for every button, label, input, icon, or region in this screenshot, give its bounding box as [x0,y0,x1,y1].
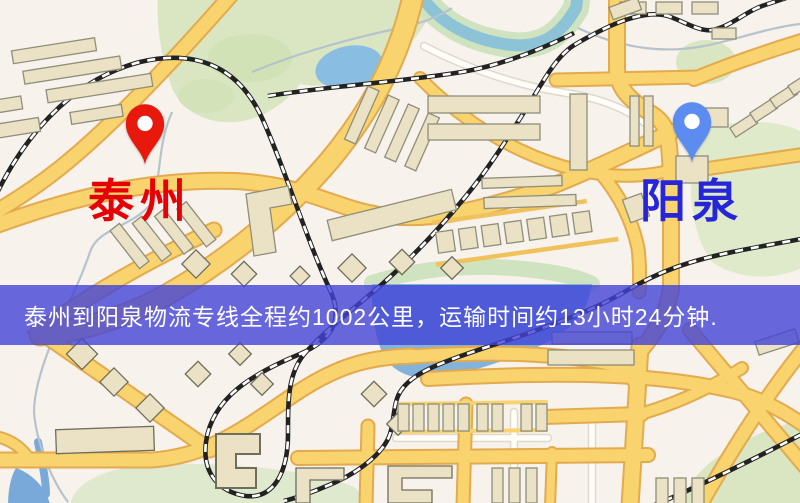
destination-pin-hole [684,114,699,129]
map-art [0,0,800,503]
origin-pin-shape [126,104,164,164]
destination-pin-icon[interactable] [669,99,715,165]
map-view: 泰州 阳泉 泰州到阳泉物流专线全程约1002公里，运输时间约13小时24分钟. [0,0,800,503]
destination-pin-shape [673,102,711,162]
origin-pin-icon[interactable] [122,101,168,167]
route-info-banner: 泰州到阳泉物流专线全程约1002公里，运输时间约13小时24分钟. [0,285,800,345]
origin-city-label: 泰州 [88,178,192,224]
destination-city-label: 阳泉 [640,178,744,224]
origin-pin-hole [137,116,152,131]
route-info-text: 泰州到阳泉物流专线全程约1002公里，运输时间约13小时24分钟. [24,298,718,332]
map-canvas[interactable] [0,0,800,503]
